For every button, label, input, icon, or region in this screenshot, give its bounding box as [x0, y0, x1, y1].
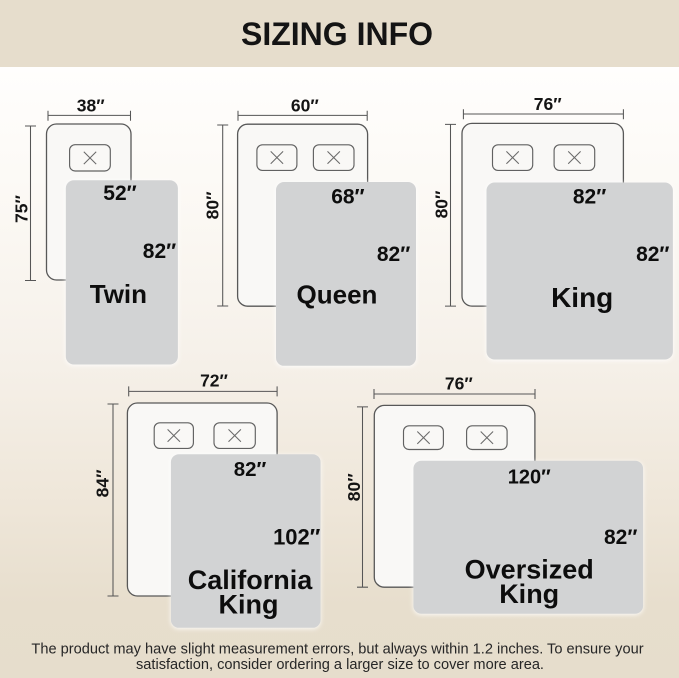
svg-text:76″: 76″: [445, 374, 473, 394]
svg-text:72″: 72″: [200, 371, 228, 391]
svg-text:82″: 82″: [143, 240, 176, 263]
svg-text:satisfaction, consider orderin: satisfaction, consider ordering a larger…: [136, 657, 544, 673]
svg-text:82″: 82″: [234, 458, 267, 481]
svg-text:75″: 75″: [11, 194, 31, 222]
svg-text:82″: 82″: [604, 526, 637, 549]
svg-text:52″: 52″: [103, 182, 136, 205]
svg-text:82″: 82″: [377, 243, 410, 266]
svg-text:68″: 68″: [331, 186, 364, 209]
svg-text:King: King: [219, 589, 279, 619]
svg-text:Queen: Queen: [297, 280, 378, 310]
svg-text:SIZING INFO: SIZING INFO: [241, 16, 433, 52]
svg-text:Twin: Twin: [90, 279, 147, 309]
svg-text:120″: 120″: [508, 467, 551, 489]
svg-text:84″: 84″: [93, 469, 113, 497]
svg-text:80″: 80″: [344, 473, 364, 501]
svg-text:82″: 82″: [573, 186, 606, 209]
svg-text:80″: 80″: [202, 191, 222, 219]
svg-text:60″: 60″: [291, 96, 319, 116]
svg-text:King: King: [551, 282, 613, 313]
svg-text:82″: 82″: [636, 243, 669, 266]
svg-text:King: King: [499, 579, 559, 609]
svg-text:The product may have slight me: The product may have slight measurement …: [31, 642, 643, 658]
svg-text:80″: 80″: [432, 190, 452, 218]
svg-text:102″: 102″: [273, 524, 321, 549]
svg-text:38″: 38″: [77, 96, 105, 116]
svg-text:76″: 76″: [534, 94, 562, 114]
